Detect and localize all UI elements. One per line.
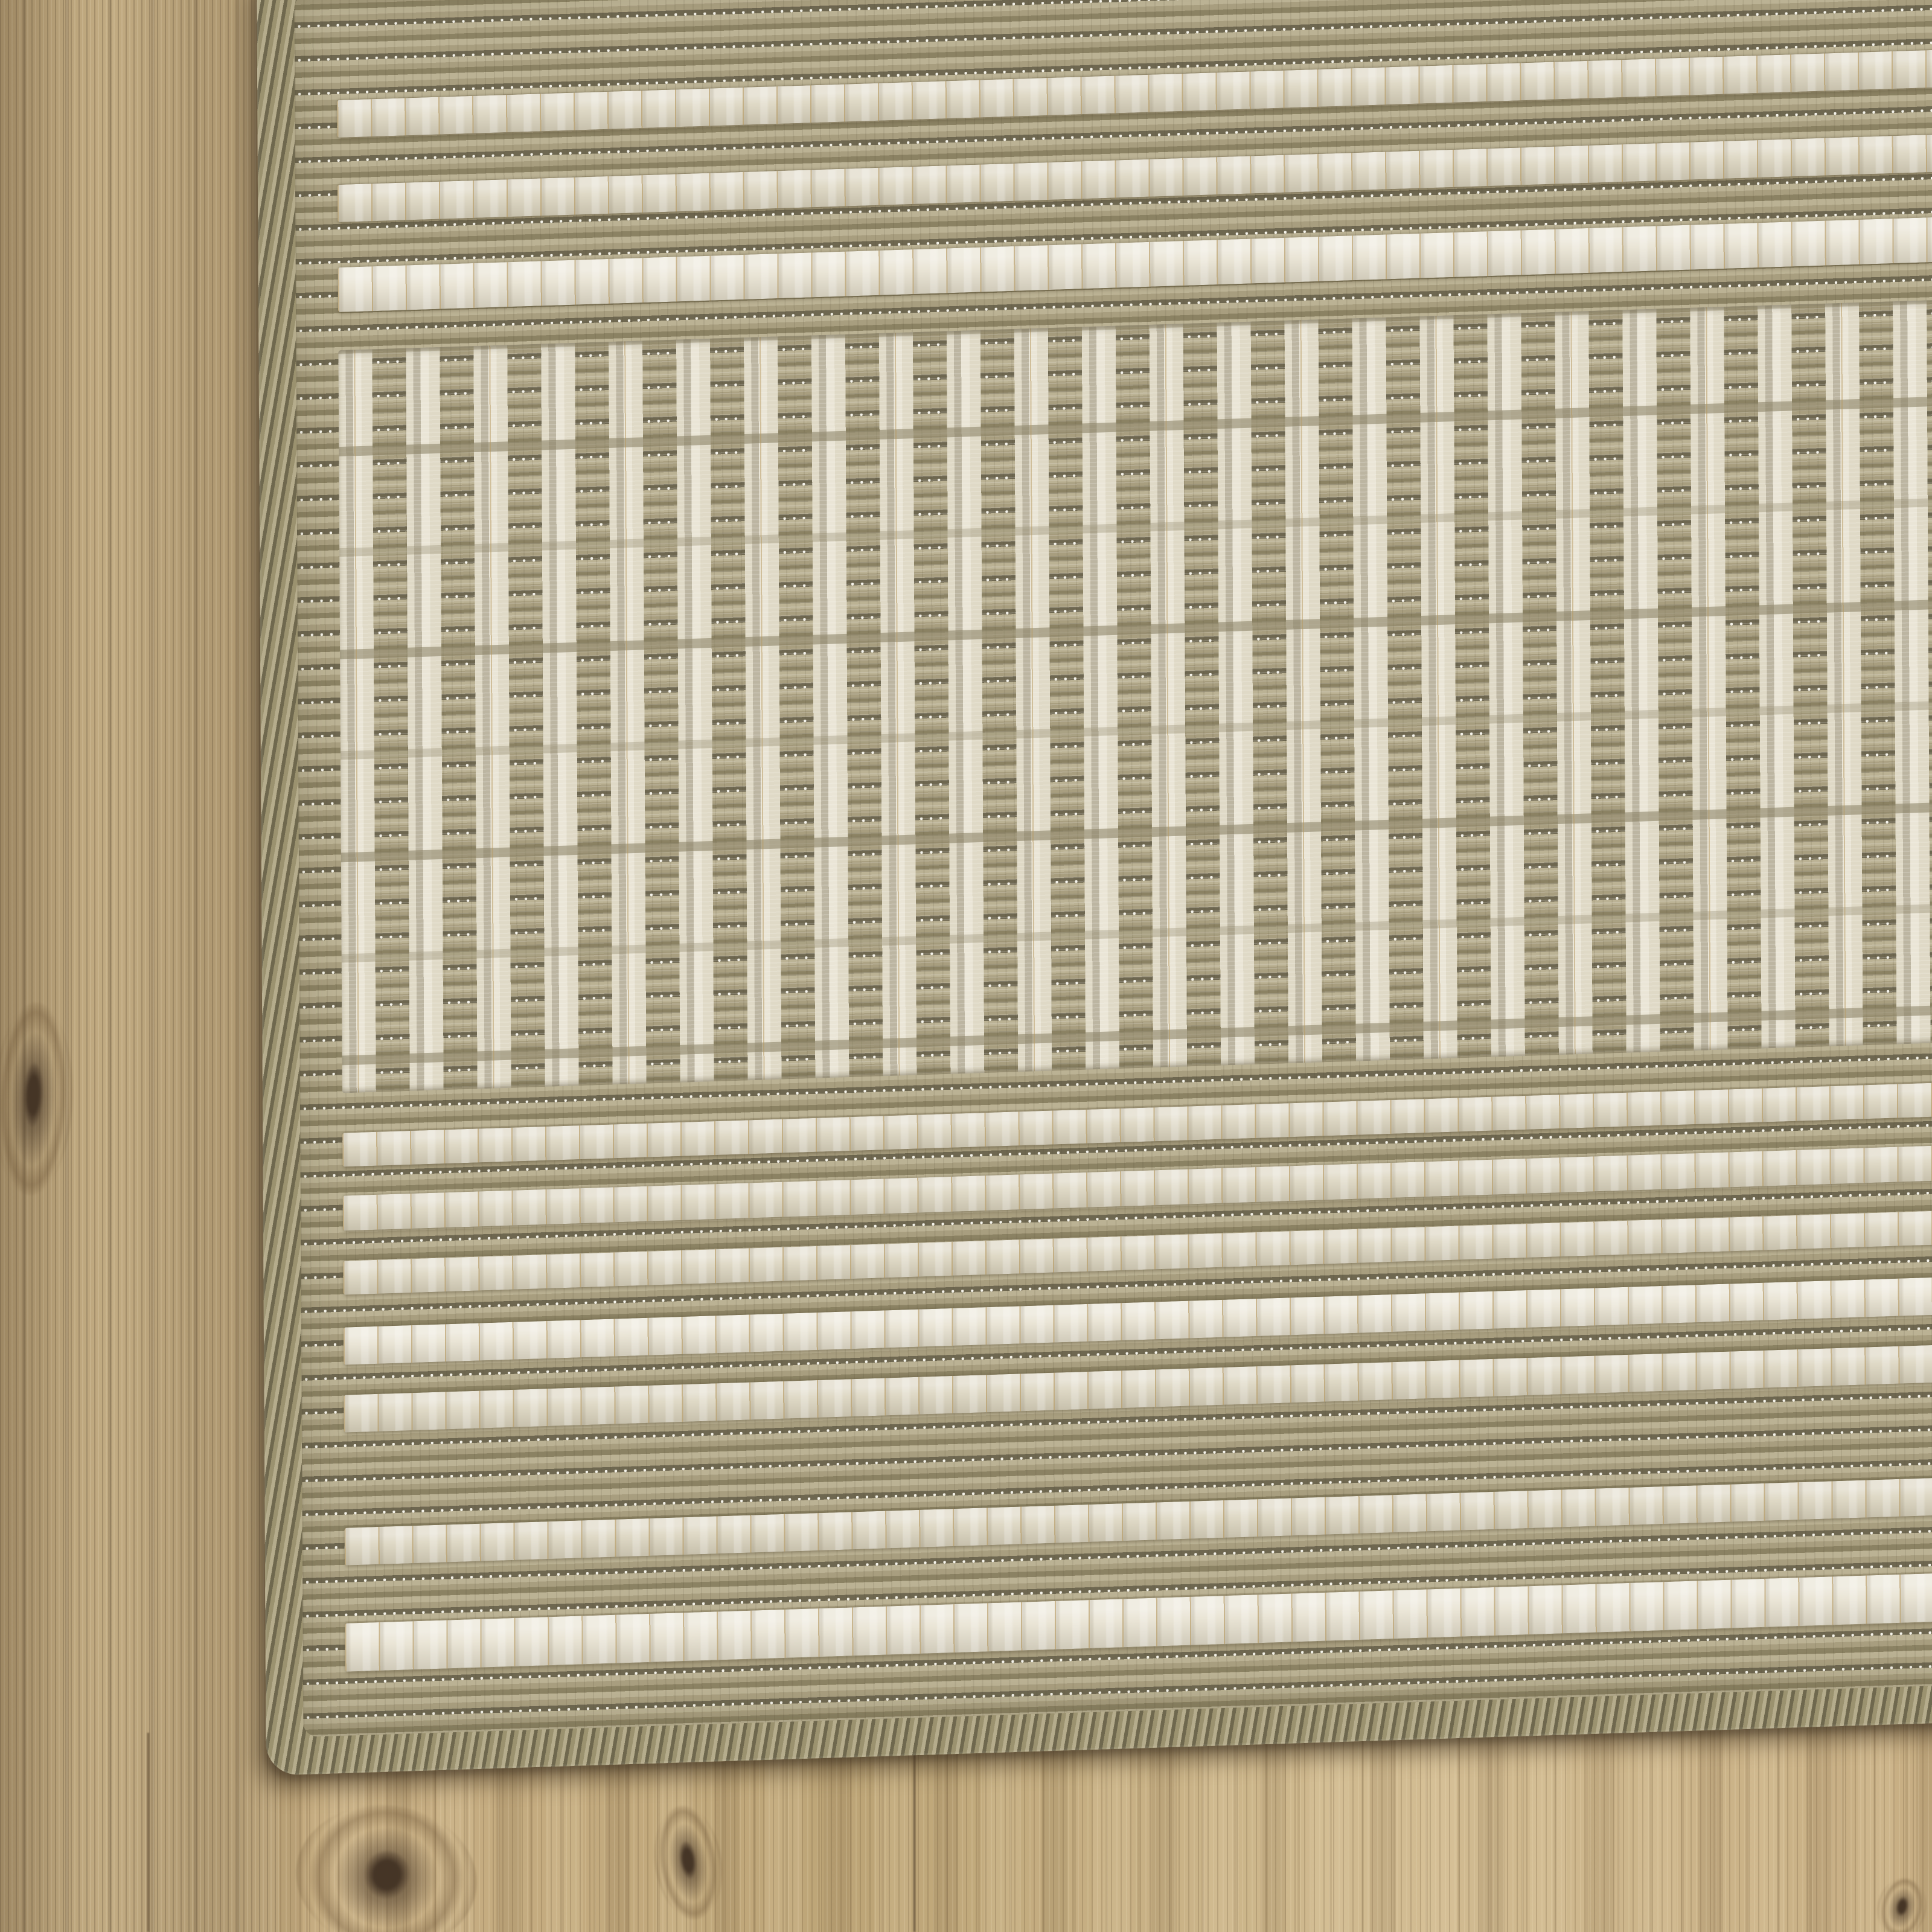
rug-cream-stripe xyxy=(343,1141,1932,1231)
rug-cream-stripe xyxy=(342,1078,1932,1167)
left-wood-plank xyxy=(0,0,279,1932)
rug-cream-stripe xyxy=(338,213,1932,312)
wood-knot xyxy=(647,1801,729,1924)
wood-knot xyxy=(1872,1873,1931,1932)
rug-vertical-bar-field xyxy=(338,295,1932,1093)
rug-cream-stripe xyxy=(343,1206,1932,1295)
rug-cream-stripe xyxy=(344,1340,1932,1433)
rug xyxy=(257,0,1932,1776)
rug-body xyxy=(294,0,1932,1737)
rug-cream-stripe xyxy=(345,1569,1932,1672)
wood-knot xyxy=(287,1793,486,1932)
rug-cream-stripe xyxy=(344,1273,1932,1365)
floor-plank-seam xyxy=(147,1733,150,1932)
rug-cream-stripe xyxy=(337,130,1932,222)
rug-cream-stripe xyxy=(345,1473,1932,1566)
rug-cream-stripe xyxy=(337,45,1932,138)
photo-rug-corner-on-wood-floor xyxy=(0,0,1932,1932)
